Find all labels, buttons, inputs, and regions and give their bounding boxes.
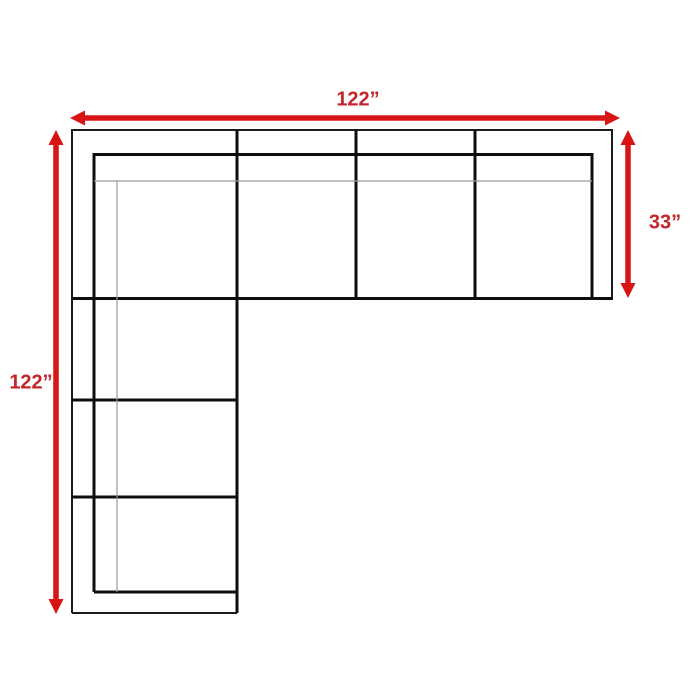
left-dimension-label: 122” — [9, 372, 52, 395]
sofa-cushion-lines — [94, 181, 592, 592]
right-arrow-top-head-icon — [621, 130, 636, 145]
right-dimension-label: 33” — [649, 212, 681, 235]
sofa-seat-inner-lines — [94, 155, 592, 593]
inner-seat-boundary — [94, 155, 592, 593]
top-dimension-label: 122” — [336, 89, 379, 112]
sofa-outer-edge — [72, 130, 612, 613]
top-arrow-left-head-icon — [70, 111, 85, 126]
sofa-section-dividers — [72, 130, 612, 613]
sofa-outline — [72, 130, 612, 613]
sofa-dimension-diagram: 122” 122” 33” — [0, 0, 700, 700]
right-arrow-bottom-head-icon — [621, 283, 636, 298]
left-arrow-top-head-icon — [49, 130, 64, 145]
left-arrow-bottom-head-icon — [49, 599, 64, 614]
right-dimension-arrow — [621, 130, 636, 298]
top-dimension-arrow — [70, 111, 620, 126]
top-arrow-right-head-icon — [605, 111, 620, 126]
